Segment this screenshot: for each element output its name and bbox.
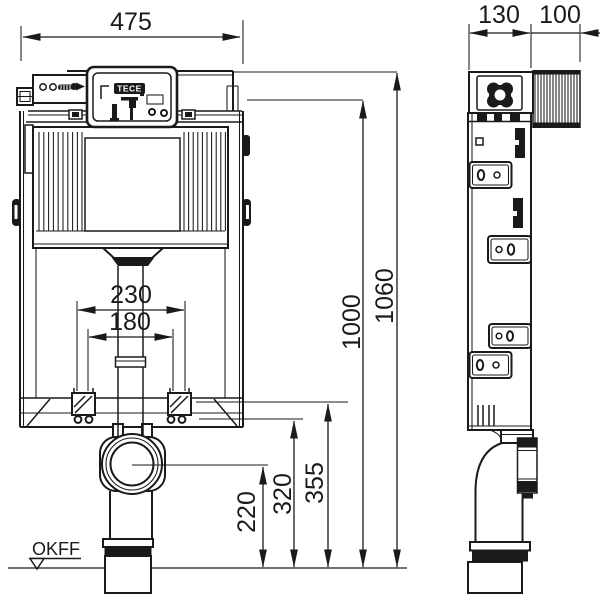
wall-hatching: [535, 74, 577, 123]
fixing-bolt: [179, 416, 186, 423]
flush-valve-clover-icon: [487, 83, 513, 108]
floor-level: OKFF: [8, 539, 407, 569]
dim-fixing-spacing-inner: 180: [88, 308, 173, 391]
mounting-plate: [470, 162, 512, 188]
drain-bend: [100, 425, 165, 494]
side-elbow: [476, 430, 538, 542]
floor-level-label: OKFF: [32, 539, 80, 559]
dim-frame-depth: 130: [469, 1, 531, 70]
drain-pipe-stub: [105, 556, 151, 593]
coupling-flange: [470, 542, 530, 551]
dim-label: 1060: [371, 268, 399, 324]
cistern-installation-drawing: TECE: [0, 0, 600, 594]
side-view: [468, 70, 580, 593]
side-body: [468, 113, 531, 430]
dim-label: 220: [233, 491, 261, 533]
fixing-bolt: [168, 416, 175, 423]
fixing-brackets: [72, 388, 191, 423]
dim-label: 130: [478, 1, 520, 29]
dim-fixing-spacing-outer: 230: [77, 281, 185, 391]
coupling-seal-band: [472, 552, 528, 562]
tank-front-panel: [85, 138, 180, 231]
dim-label: 180: [109, 308, 151, 336]
flush-bell: [112, 258, 154, 266]
mounting-plate: [488, 236, 531, 263]
fixing-bolt: [75, 416, 82, 423]
dim-label: 1000: [338, 294, 366, 350]
technical-drawing: TECE: [0, 0, 600, 594]
dim-label: 320: [269, 473, 297, 515]
dim-label: 230: [110, 281, 152, 309]
side-rail-left: [25, 125, 33, 173]
cistern-tank: [33, 127, 228, 248]
dim-label: 355: [301, 462, 329, 504]
outlet-pipe-front: [103, 491, 153, 593]
lid-and-access-box: TECE: [63, 67, 238, 127]
drain-outlet-bore: [111, 443, 154, 486]
side-frame: [468, 113, 531, 430]
frame-clip-right: [242, 135, 250, 156]
fixing-bolt: [86, 416, 93, 423]
dim-label: 475: [110, 8, 152, 36]
brand-logo-text: TECE: [117, 84, 142, 94]
drain-pipe-stub: [468, 562, 522, 593]
flush-funnel: [103, 248, 163, 258]
mounting-plate: [489, 324, 531, 348]
dim-label: 100: [539, 1, 581, 29]
side-outlet-pipe: [468, 542, 530, 593]
wall-section: [533, 70, 580, 128]
pipe-socket: [116, 357, 146, 367]
coupling-seal-band: [105, 547, 152, 556]
coupling-flange: [103, 539, 153, 547]
flush-pipe: [103, 248, 163, 438]
water-connection: [17, 75, 87, 105]
dim-wall-thickness: 100: [531, 1, 600, 62]
dim-overall-width: 475: [21, 8, 243, 64]
